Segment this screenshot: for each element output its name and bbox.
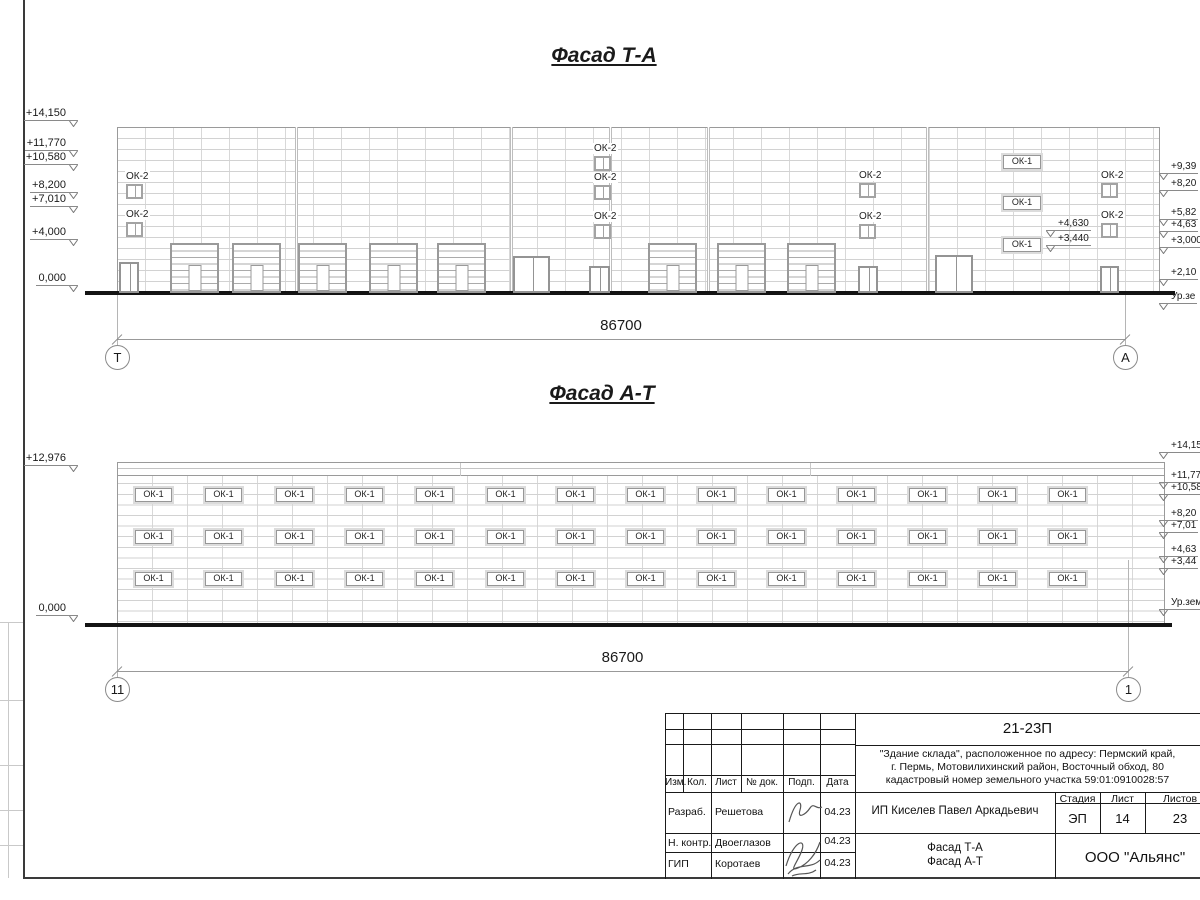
tb-col-kol: Кол. [683, 777, 711, 788]
window-ok1: ОК-1 [487, 530, 524, 544]
window-ok1: ОК-1 [205, 530, 242, 544]
margin-line [0, 810, 23, 811]
elevation-arrow-icon [69, 121, 78, 127]
description-line: кадастровый номер земельного участка 59:… [855, 774, 1200, 787]
sectional-gate [232, 243, 281, 293]
stage-value: 14 [1100, 811, 1145, 826]
window-ok1: ОК-1 [698, 530, 735, 544]
project-description: "Здание склада", расположенное по адресу… [855, 748, 1200, 787]
tb-col-izm: Изм. [665, 777, 683, 788]
window-label-ok2: ОК-2 [1100, 170, 1125, 181]
window-ok1: ОК-1 [838, 530, 875, 544]
staff-date: 04.23 [820, 806, 855, 818]
window-ok2 [594, 156, 611, 171]
elevation-mark: Ур.зе [1159, 291, 1197, 304]
parapet-strip [117, 462, 1165, 476]
staff-name: Решетова [715, 806, 763, 818]
organization-name: ООО "Альянс" [1055, 849, 1200, 866]
staff-role: Н. контр. [668, 837, 711, 849]
stage-value: ЭП [1055, 811, 1100, 826]
axis-bubble-a: А [1113, 345, 1138, 370]
window-ok2 [594, 185, 611, 200]
window-ok1: ОК-1 [557, 572, 594, 586]
parapet-joint [460, 463, 461, 476]
staff-date: 04.23 [820, 835, 855, 847]
margin-line [0, 765, 23, 766]
elevation-arrow-icon [69, 165, 78, 171]
panel-joint [707, 127, 710, 293]
elevation-arrow-icon [69, 240, 78, 246]
elevation-mark: +4,63 [1159, 219, 1198, 232]
window-ok1: ОК-1 [346, 488, 383, 502]
elevation-mark: +14,15 [1159, 440, 1200, 453]
window-label-ok2: ОК-2 [125, 171, 150, 182]
tb-line [855, 713, 856, 879]
window-ok2 [126, 222, 143, 237]
window-ok1: ОК-1 [557, 488, 594, 502]
elevation-mark: +4,630 [1046, 218, 1091, 231]
window-ok1: ОК-1 [909, 572, 946, 586]
staff-name: Двоеглазов [715, 837, 771, 849]
stage-header: Лист [1100, 793, 1145, 805]
margin-line [0, 845, 23, 846]
elevation-arrow-icon [69, 207, 78, 213]
window-label-ok2: ОК-2 [1100, 210, 1125, 221]
window-ok1: ОК-1 [1049, 488, 1086, 502]
staff-role: Разраб. [668, 806, 706, 818]
elevation-mark: Ур.зем [1159, 597, 1200, 610]
project-code: 21-23П [855, 720, 1200, 737]
elevation-mark: +12,976 [24, 452, 78, 466]
window-ok2 [126, 184, 143, 199]
axis-extension [1125, 295, 1126, 352]
sectional-gate [369, 243, 418, 293]
sectional-gate [298, 243, 347, 293]
stage-header: Стадия [1055, 793, 1100, 805]
window-ok1: ОК-1 [909, 530, 946, 544]
tb-line [665, 713, 666, 879]
window-ok1: ОК-1 [416, 488, 453, 502]
signature-nkontr-gip [782, 832, 824, 878]
window-ok1: ОК-1 [979, 530, 1016, 544]
tb-line [711, 713, 712, 879]
elevation-mark: +3,000 [1159, 235, 1200, 248]
window-ok1: ОК-1 [1003, 238, 1041, 252]
elevation-arrow-icon [69, 286, 78, 292]
window-ok1: ОК-1 [205, 488, 242, 502]
window-ok2 [594, 224, 611, 239]
elevation-arrow-icon [1159, 610, 1168, 616]
parapet-line [118, 468, 1164, 469]
axis-bubble-11: 11 [105, 677, 130, 702]
tb-col-dok: № док. [741, 777, 783, 788]
dimension-value: 86700 [117, 649, 1128, 666]
window-ok1: ОК-1 [205, 572, 242, 586]
window-ok2 [859, 183, 876, 198]
elevation-arrow-icon [1159, 533, 1168, 539]
sheet-name-line: Фасад Т-А [855, 842, 1055, 854]
window-ok1: ОК-1 [627, 572, 664, 586]
margin-line [8, 622, 9, 878]
tb-line [665, 852, 855, 853]
window-ok1: ОК-1 [346, 530, 383, 544]
window-ok1: ОК-1 [276, 488, 313, 502]
window-ok1: ОК-1 [1003, 196, 1041, 210]
window-ok1: ОК-1 [909, 488, 946, 502]
ground-line [85, 623, 1172, 627]
window-ok1: ОК-1 [1049, 572, 1086, 586]
window-ok1: ОК-1 [1003, 155, 1041, 169]
elevation-arrow-icon [69, 466, 78, 472]
elevation-arrow-icon [1159, 495, 1168, 501]
axis-bubble-t: Т [105, 345, 130, 370]
double-door [513, 256, 550, 293]
sheet-name-line: Фасад А-Т [855, 856, 1055, 868]
sectional-gate [717, 243, 766, 293]
elevation-arrow-icon [1159, 248, 1168, 254]
margin-line [0, 622, 23, 623]
tb-line [665, 744, 855, 745]
window-ok1: ОК-1 [698, 488, 735, 502]
window-ok1: ОК-1 [768, 572, 805, 586]
facade-at-title: Фасад А-Т [549, 382, 654, 406]
signature-razrab [786, 794, 824, 832]
staff-role: ГИП [668, 858, 689, 870]
sectional-gate [437, 243, 486, 293]
window-ok1: ОК-1 [627, 488, 664, 502]
margin-line [0, 700, 23, 701]
entry-door [589, 266, 610, 293]
elevation-mark: +11,770 [25, 137, 78, 151]
window-ok1: ОК-1 [979, 488, 1016, 502]
axis-extension [1128, 560, 1129, 684]
elevation-arrow-icon [69, 616, 78, 622]
window-ok1: ОК-1 [276, 572, 313, 586]
elevation-mark: +3,44 [1159, 556, 1198, 569]
window-ok1: ОК-1 [487, 572, 524, 586]
elevation-mark: 0,000 [36, 272, 78, 286]
staff-name: Коротаев [715, 858, 760, 870]
drawing-sheet: Фасад Т-А 86700 Т А Фасад А-Т 86700 11 [0, 0, 1200, 900]
window-label-ok2: ОК-2 [125, 209, 150, 220]
elevation-mark: +14,150 [24, 107, 78, 121]
window-ok1: ОК-1 [135, 572, 172, 586]
window-ok1: ОК-1 [979, 572, 1016, 586]
sectional-gate [787, 243, 836, 293]
elevation-mark: +2,10 [1159, 267, 1198, 280]
elevation-mark: 0,000 [36, 602, 78, 616]
sheet-border-left [23, 0, 25, 879]
tb-line [665, 833, 1200, 834]
elevation-arrow-icon [1159, 280, 1168, 286]
elevation-mark: +10,580 [24, 151, 78, 165]
tb-line [665, 775, 855, 776]
elevation-mark: +4,000 [30, 226, 78, 240]
tb-col-data: Дата [820, 777, 855, 788]
window-ok1: ОК-1 [135, 530, 172, 544]
client-name: ИП Киселев Павел Аркадьевич [855, 805, 1055, 817]
sectional-gate [648, 243, 697, 293]
window-ok1: ОК-1 [416, 530, 453, 544]
staff-date: 04.23 [820, 857, 855, 869]
tb-line [665, 729, 855, 730]
window-ok2 [859, 224, 876, 239]
entry-door [1100, 266, 1119, 293]
window-label-ok2: ОК-2 [858, 211, 883, 222]
dimension-line [117, 339, 1125, 340]
window-ok1: ОК-1 [487, 488, 524, 502]
window-ok2 [1101, 183, 1118, 198]
elevation-mark: +7,01 [1159, 520, 1198, 533]
elevation-mark: +9,39 [1159, 161, 1198, 174]
window-label-ok2: ОК-2 [858, 170, 883, 181]
window-ok1: ОК-1 [1049, 530, 1086, 544]
window-ok1: ОК-1 [768, 530, 805, 544]
elevation-mark: +3,440 [1046, 233, 1091, 246]
axis-bubble-1: 1 [1116, 677, 1141, 702]
window-ok1: ОК-1 [416, 572, 453, 586]
window-ok1: ОК-1 [346, 572, 383, 586]
window-ok1: ОК-1 [838, 572, 875, 586]
stage-header: Листов [1145, 793, 1200, 805]
dimension-line [117, 671, 1128, 672]
elevation-mark: +8,200 [30, 179, 78, 193]
tb-line [665, 713, 1200, 714]
sheet-border-bottom [23, 877, 1200, 879]
elevation-arrow-icon [1159, 191, 1168, 197]
window-label-ok2: ОК-2 [593, 172, 618, 183]
window-ok1: ОК-1 [768, 488, 805, 502]
window-label-ok2: ОК-2 [593, 211, 618, 222]
window-ok1: ОК-1 [557, 530, 594, 544]
dimension-value: 86700 [117, 317, 1125, 334]
stage-value: 23 [1145, 811, 1200, 826]
entry-door [858, 266, 878, 293]
description-line: "Здание склада", расположенное по адресу… [855, 748, 1200, 761]
entry-door [119, 262, 139, 293]
window-ok1: ОК-1 [698, 572, 735, 586]
elevation-arrow-icon [1046, 246, 1055, 252]
elevation-arrow-icon [1159, 304, 1168, 310]
sectional-gate [170, 243, 219, 293]
panel-joint [926, 127, 929, 293]
elevation-arrow-icon [1159, 569, 1168, 575]
double-door [935, 255, 973, 293]
elevation-mark: +8,20 [1159, 178, 1198, 191]
parapet-joint [810, 463, 811, 476]
window-ok2 [1101, 223, 1118, 238]
elevation-arrow-icon [1159, 453, 1168, 459]
window-ok1: ОК-1 [276, 530, 313, 544]
description-line: г. Пермь, Мотовилихинский район, Восточн… [855, 761, 1200, 774]
window-ok1: ОК-1 [627, 530, 664, 544]
elevation-mark: +10,58 [1159, 482, 1200, 495]
tb-line [855, 745, 1200, 746]
tb-col-list: Лист [711, 777, 741, 788]
window-ok1: ОК-1 [135, 488, 172, 502]
window-ok1: ОК-1 [838, 488, 875, 502]
elevation-mark: +7,010 [30, 193, 78, 207]
facade-ta-title: Фасад Т-А [551, 44, 656, 68]
window-label-ok2: ОК-2 [593, 143, 618, 154]
tb-col-podp: Подп. [783, 777, 820, 788]
